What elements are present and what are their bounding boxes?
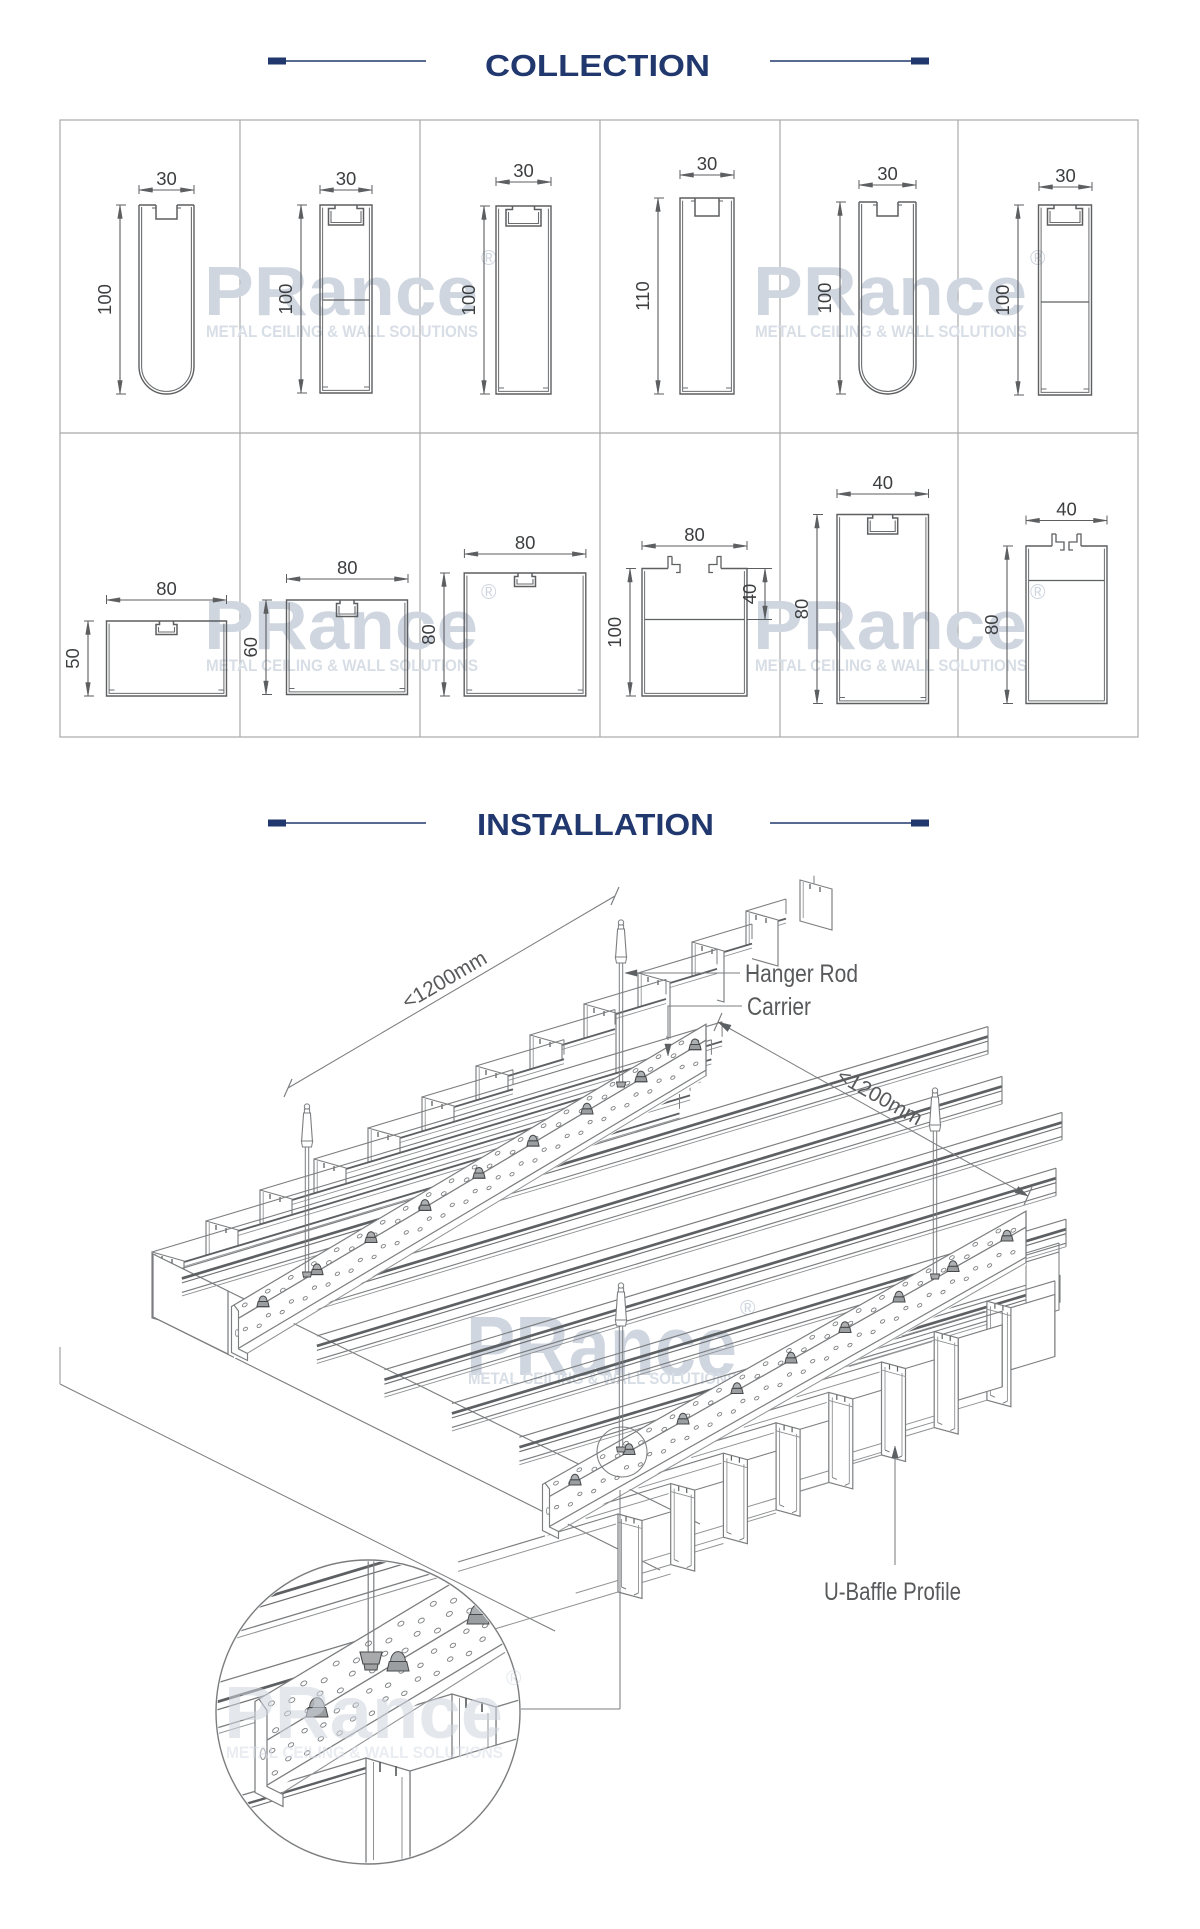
svg-text:80: 80 [156,578,177,599]
svg-text:30: 30 [513,160,534,181]
svg-text:100: 100 [94,284,115,315]
svg-text:<1200mm: <1200mm [398,947,491,1014]
svg-text:METAL CEILING & WALL SOLUTIONS: METAL CEILING & WALL SOLUTIONS [206,323,478,341]
svg-text:METAL CEILING & WALL SOLUTIONS: METAL CEILING & WALL SOLUTIONS [206,657,478,675]
svg-text:PRance: PRance [753,252,1027,330]
svg-text:METAL CEILING & WALL SOLUTIONS: METAL CEILING & WALL SOLUTIONS [755,323,1027,341]
svg-text:Hanger Rod: Hanger Rod [745,960,858,988]
svg-text:80: 80 [791,599,812,620]
svg-text:30: 30 [1055,165,1076,186]
svg-text:80: 80 [515,532,536,553]
svg-text:40: 40 [739,584,760,605]
svg-text:®: ® [481,581,497,604]
svg-text:INSTALLATION: INSTALLATION [477,807,714,842]
svg-text:®: ® [1030,581,1046,604]
svg-text:®: ® [481,247,497,270]
svg-text:80: 80 [684,524,705,545]
svg-text:METAL CEILING & WALL SOLUTIONS: METAL CEILING & WALL SOLUTIONS [755,657,1027,675]
svg-text:Carrier: Carrier [747,993,811,1021]
svg-text:40: 40 [872,472,893,493]
svg-text:30: 30 [156,168,177,189]
svg-text:110: 110 [632,281,653,311]
svg-text:100: 100 [992,285,1013,316]
svg-text:®: ® [506,1667,522,1690]
svg-text:PRance: PRance [204,252,478,330]
svg-text:80: 80 [418,624,439,645]
svg-text:100: 100 [814,283,835,314]
svg-text:60: 60 [240,637,261,658]
svg-text:30: 30 [877,163,898,184]
svg-text:100: 100 [458,285,479,316]
svg-text:COLLECTION: COLLECTION [485,48,710,83]
svg-text:80: 80 [337,557,358,578]
svg-text:30: 30 [336,168,357,189]
svg-text:U-Baffle Profile: U-Baffle Profile [824,1578,961,1606]
svg-text:100: 100 [604,617,625,648]
svg-text:PRance: PRance [224,1671,503,1754]
svg-text:80: 80 [981,614,1002,635]
svg-text:30: 30 [697,153,718,174]
svg-text:50: 50 [62,648,83,669]
svg-text:METAL CEILING & WALL SOLUTIONS: METAL CEILING & WALL SOLUTIONS [226,1744,503,1762]
svg-text:100: 100 [275,284,296,315]
svg-text:40: 40 [1056,499,1077,520]
